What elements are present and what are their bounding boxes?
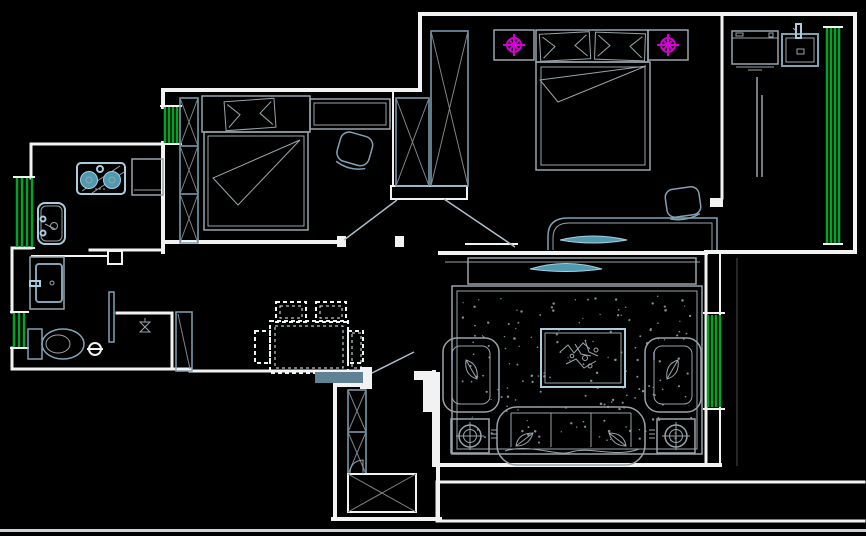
armchair-cushion — [452, 346, 490, 404]
sink-drain — [797, 49, 804, 54]
hall-closet[interactable] — [396, 98, 429, 186]
wardrobe-x — [431, 31, 468, 186]
door-jamb — [337, 236, 346, 247]
light-cross — [503, 34, 525, 56]
closet-threshold-band — [391, 186, 467, 199]
wall-column — [108, 251, 122, 264]
window-glass — [708, 315, 720, 407]
chair-seat — [335, 130, 375, 168]
bathroom-door[interactable] — [176, 312, 192, 371]
chair-seat — [664, 186, 702, 218]
blanket-fold — [540, 66, 646, 102]
washer-base — [736, 67, 774, 70]
master-door-leaf[interactable] — [444, 199, 515, 247]
faucet-hot — [41, 217, 46, 222]
entry-door-leaf[interactable] — [372, 352, 414, 373]
toilet-tank — [28, 329, 42, 359]
kitchen[interactable] — [38, 159, 163, 244]
bedroom2-door-leaf[interactable] — [344, 200, 397, 240]
dining-chair-1-inner — [280, 306, 302, 318]
closets[interactable] — [396, 31, 468, 186]
dining-chair-3[interactable] — [255, 331, 270, 363]
entry-cabinet[interactable] — [348, 474, 416, 512]
leaf-left — [516, 433, 533, 446]
floor-plan-drawing[interactable] — [0, 0, 866, 536]
shower-head[interactable] — [140, 318, 150, 332]
balcony-sliding-track[interactable] — [757, 77, 762, 177]
armchair-right[interactable] — [645, 338, 701, 412]
master-chair[interactable] — [664, 186, 702, 222]
bedroom2-desk[interactable] — [310, 99, 390, 129]
coffee-table[interactable] — [541, 329, 625, 387]
pillow-crease — [598, 35, 643, 58]
wardrobe-x — [180, 98, 198, 243]
pillow-left — [539, 32, 590, 62]
lamp-cross — [456, 422, 484, 450]
toilet-seat — [46, 335, 70, 353]
doors[interactable] — [109, 77, 762, 373]
dining-table[interactable] — [270, 321, 348, 373]
closet-x — [396, 98, 429, 186]
bedroom2-wardrobe[interactable] — [180, 98, 198, 243]
sofa-outline — [497, 407, 645, 465]
lamp-table-right[interactable] — [649, 419, 695, 453]
sofa-cushions — [511, 413, 631, 447]
sliding-track — [757, 77, 762, 177]
pillow-crease — [227, 101, 272, 127]
washer-display — [736, 33, 743, 36]
kitchen-west-window[interactable] — [14, 177, 34, 248]
headboard — [202, 96, 310, 132]
bedroom2-chair[interactable] — [333, 130, 374, 173]
pillow — [224, 98, 276, 130]
master-bed[interactable] — [536, 30, 650, 170]
pillow-right — [595, 32, 646, 61]
sliding-panel — [109, 292, 114, 342]
mattress — [208, 136, 304, 226]
wall-lower-corridor — [437, 482, 864, 521]
master-bedroom[interactable] — [494, 30, 717, 250]
sofa[interactable] — [497, 407, 645, 465]
door-jamb — [395, 236, 404, 247]
master-wardrobe[interactable] — [431, 31, 468, 186]
wall-kitchen — [31, 144, 163, 250]
faucet-cold — [41, 231, 46, 236]
table-top — [270, 321, 348, 373]
leaf-decor — [466, 360, 478, 379]
entry-jamb-right-leg — [423, 380, 432, 412]
bedroom2[interactable] — [180, 96, 390, 243]
living-room[interactable] — [443, 258, 702, 465]
armchair-body — [645, 338, 701, 412]
shower-symbol — [140, 318, 150, 332]
dining-chair-2-inner — [320, 306, 342, 318]
lamp-cross — [662, 422, 690, 450]
window-glass — [17, 178, 32, 247]
floor-drain[interactable] — [88, 343, 102, 355]
balcony-east-window[interactable] — [824, 27, 842, 244]
desk-inner — [314, 103, 386, 125]
armchair-cushion — [654, 346, 692, 404]
blanket-fold — [213, 140, 300, 205]
sink-faucet — [796, 24, 801, 38]
walls[interactable] — [12, 14, 864, 521]
faucet-spout — [45, 224, 55, 229]
window-glass — [827, 28, 839, 243]
sink-inner — [786, 38, 814, 62]
bed-frame — [204, 132, 308, 230]
entry-hall[interactable] — [348, 390, 416, 512]
master-desk[interactable] — [548, 218, 717, 250]
bedroom2-west-window[interactable] — [161, 106, 181, 144]
leaf-right — [609, 433, 626, 446]
television[interactable] — [530, 264, 602, 272]
fridge-counter[interactable] — [132, 159, 163, 195]
window-glass — [14, 313, 24, 347]
mattress — [541, 67, 645, 165]
balcony[interactable] — [732, 24, 818, 70]
keyboard-tray — [560, 236, 627, 243]
lamp-table-left[interactable] — [451, 419, 497, 453]
washing-machine[interactable] — [732, 31, 778, 70]
cabinet-x — [348, 474, 416, 512]
burner-left — [81, 172, 98, 189]
bathroom-sliding-panel[interactable] — [109, 292, 114, 342]
viewport-bottom-strip — [0, 529, 866, 532]
ceiling-light-right[interactable] — [657, 34, 679, 56]
connector — [491, 430, 497, 438]
balcony-door-jamb — [710, 198, 723, 207]
pillow-crease — [543, 35, 588, 58]
ceiling-light-left[interactable] — [503, 34, 525, 56]
rug-border-inner — [457, 291, 697, 449]
bathroom-west-window[interactable] — [11, 312, 28, 348]
leaf-decor — [667, 360, 679, 379]
dining-chair-4[interactable] — [348, 331, 363, 363]
bathroom-door-leaf — [178, 314, 190, 369]
cad-viewport[interactable] — [0, 0, 866, 536]
bedroom2-bed[interactable] — [202, 96, 310, 230]
window-glass — [165, 107, 177, 143]
burner-right — [104, 172, 121, 189]
entry-jamb-right — [414, 371, 432, 380]
connector — [649, 430, 655, 438]
bathroom[interactable] — [28, 257, 150, 359]
bathroom-basin[interactable] — [30, 257, 64, 309]
stove-pilot — [97, 166, 103, 172]
living-east-window[interactable] — [704, 313, 724, 409]
washer-knob — [769, 33, 773, 37]
toilet[interactable] — [28, 329, 84, 359]
gas-stove[interactable] — [77, 163, 125, 194]
laundry-sink[interactable] — [782, 24, 818, 66]
toilet-bowl — [42, 329, 84, 359]
plant-decor — [560, 340, 598, 368]
basin-drain — [50, 281, 54, 285]
doorway-threshold — [315, 372, 363, 383]
table-inner — [275, 326, 343, 368]
kitchen-sink[interactable] — [38, 203, 65, 244]
light-cross — [657, 34, 679, 56]
